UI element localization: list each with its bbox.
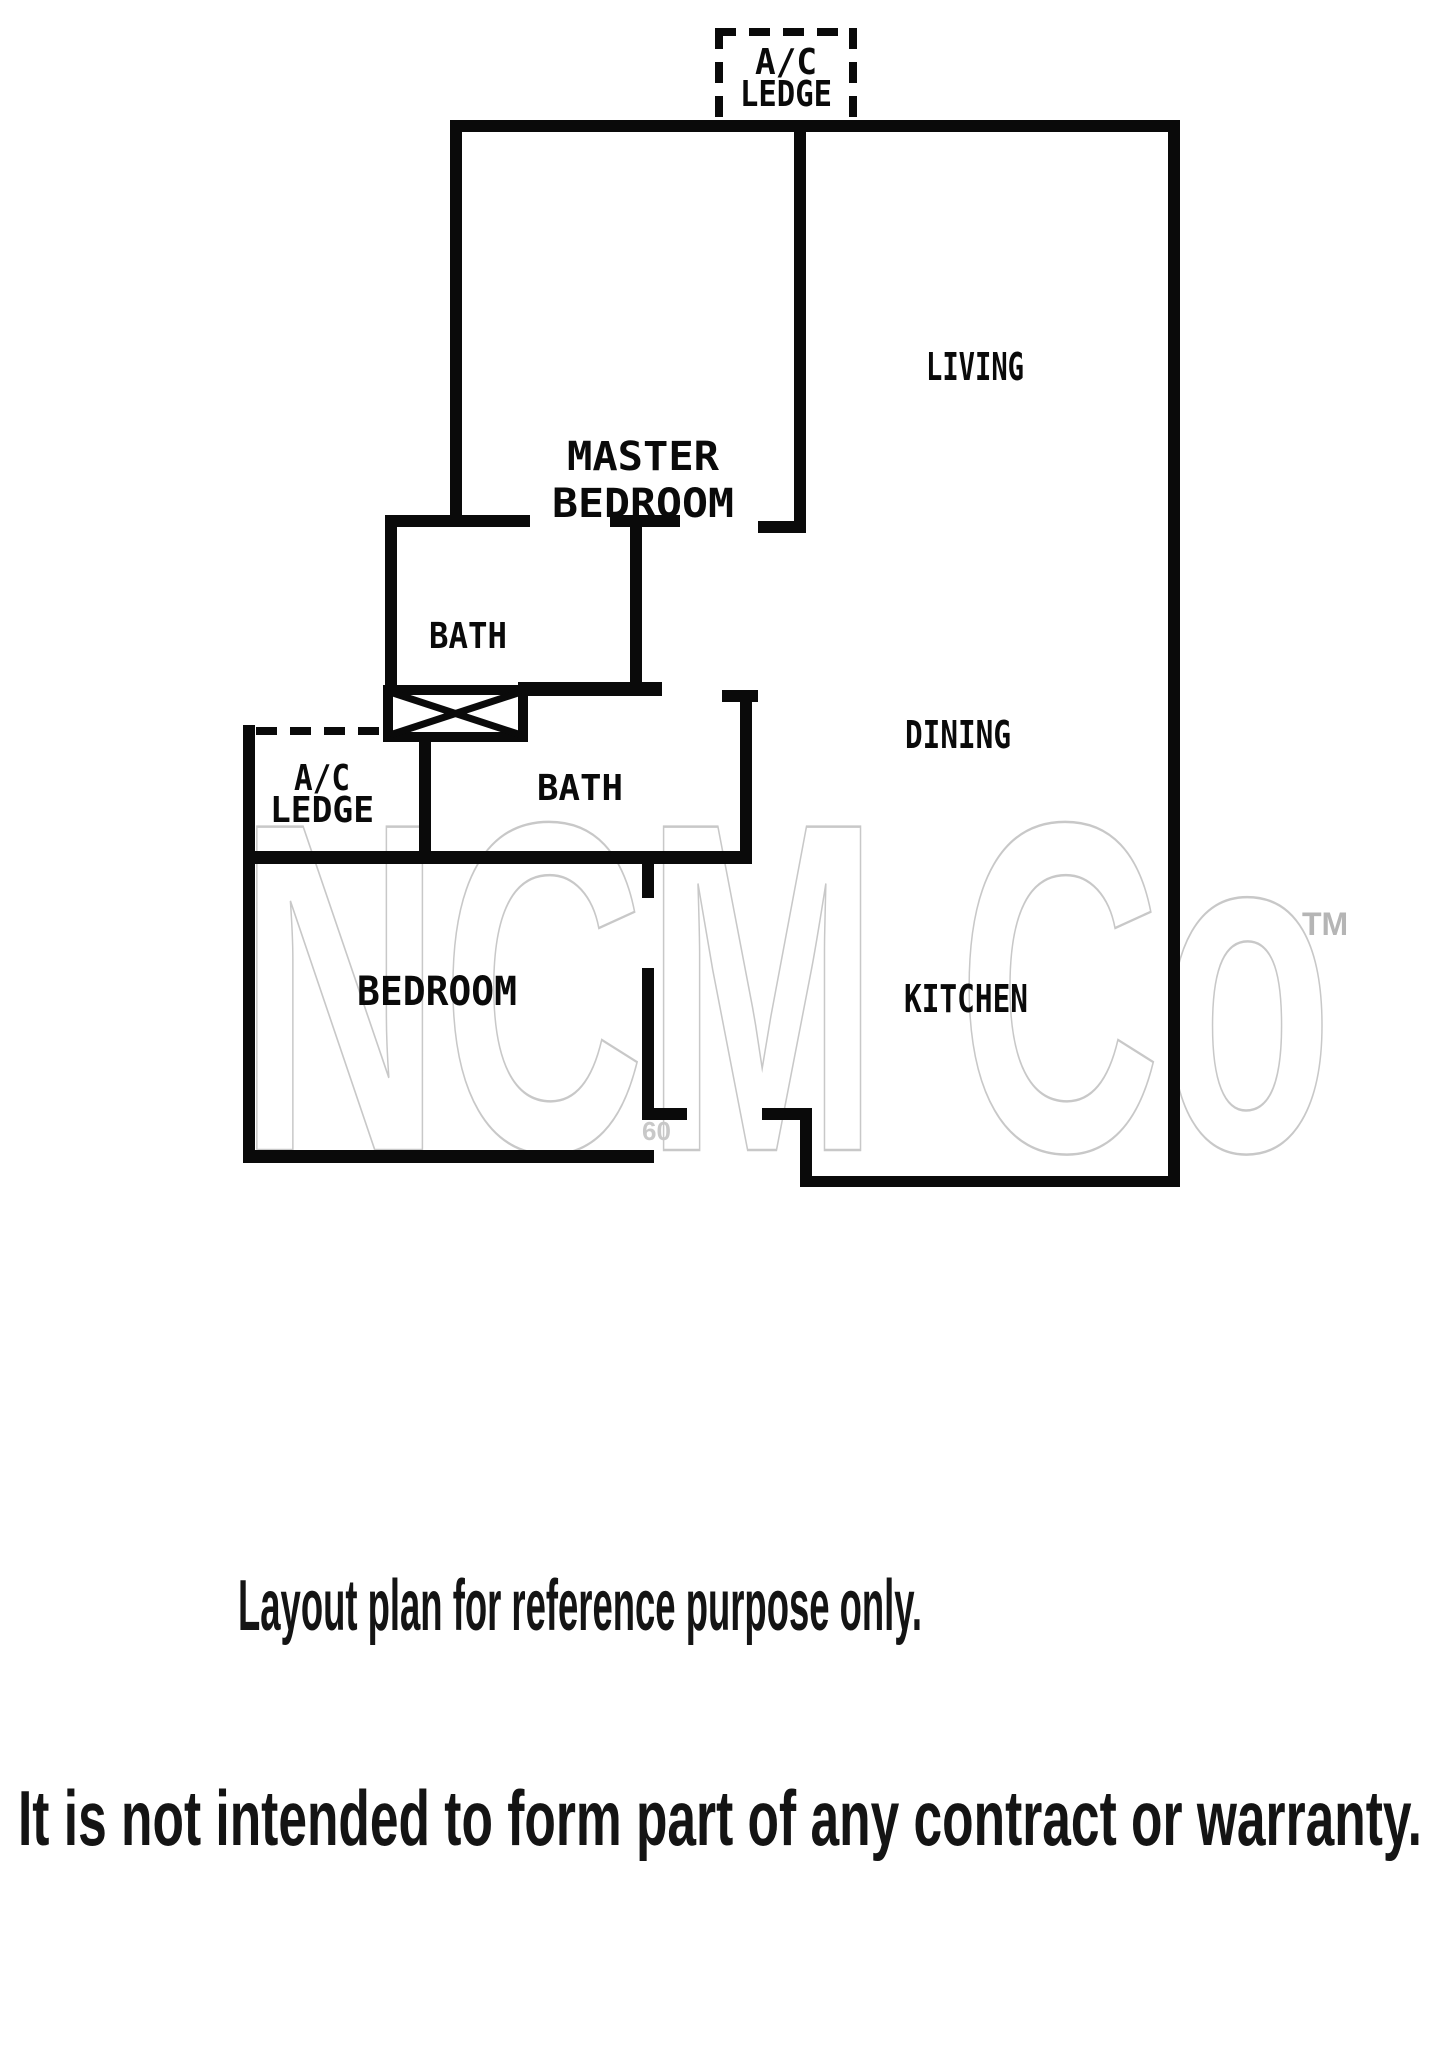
bath-upper-label: BATH [429,616,507,657]
bedroom-label: BEDROOM [357,969,517,1015]
wall-segment [1168,120,1180,1187]
wall-segment [518,682,662,696]
wall-segment [794,120,806,533]
master-bedroom-label-line1: MASTER [567,434,720,480]
caption-warranty: It is not intended to form part of any c… [18,1774,1422,1862]
wall-segment [762,1108,812,1120]
caption-reference: Layout plan for reference purpose only. [238,1566,922,1646]
captions: Layout plan for reference purpose only. … [18,1566,1422,1862]
wall-segment [758,521,806,533]
watermark-stray-digits: 60 [642,1116,671,1146]
kitchen-label: KITCHEN [904,977,1028,1021]
ac-ledge-top-label-line2: LEDGE [740,74,832,115]
wall-segment [243,725,255,1163]
wall-segment [740,690,752,864]
wall-segment [642,851,654,898]
dashed-ledge-lines [256,28,857,731]
wall-segment [456,120,1180,132]
bath-lower-label: BATH [537,768,623,809]
living-label: LIVING [926,345,1024,389]
master-bedroom-label-line2: BEDROOM [552,481,734,527]
wall-segment [385,515,397,695]
wall-segment [419,737,431,863]
wall-segment [385,515,530,527]
wall-segment [243,1150,654,1163]
ac-ledge-left-label-line2: LEDGE [270,790,374,831]
scanned-floorplan-page: NCM Co TM 60 [0,0,1434,2048]
watermark-tm-mark: TM [1302,906,1348,942]
wall-segment [630,515,642,696]
wall-segment [642,968,654,1120]
floor-plan: NCM Co TM 60 [0,0,1434,2048]
wall-segment [800,1176,1180,1187]
wall-segment [450,120,462,527]
wall-segment [243,851,752,864]
dining-label: DINING [905,713,1011,757]
